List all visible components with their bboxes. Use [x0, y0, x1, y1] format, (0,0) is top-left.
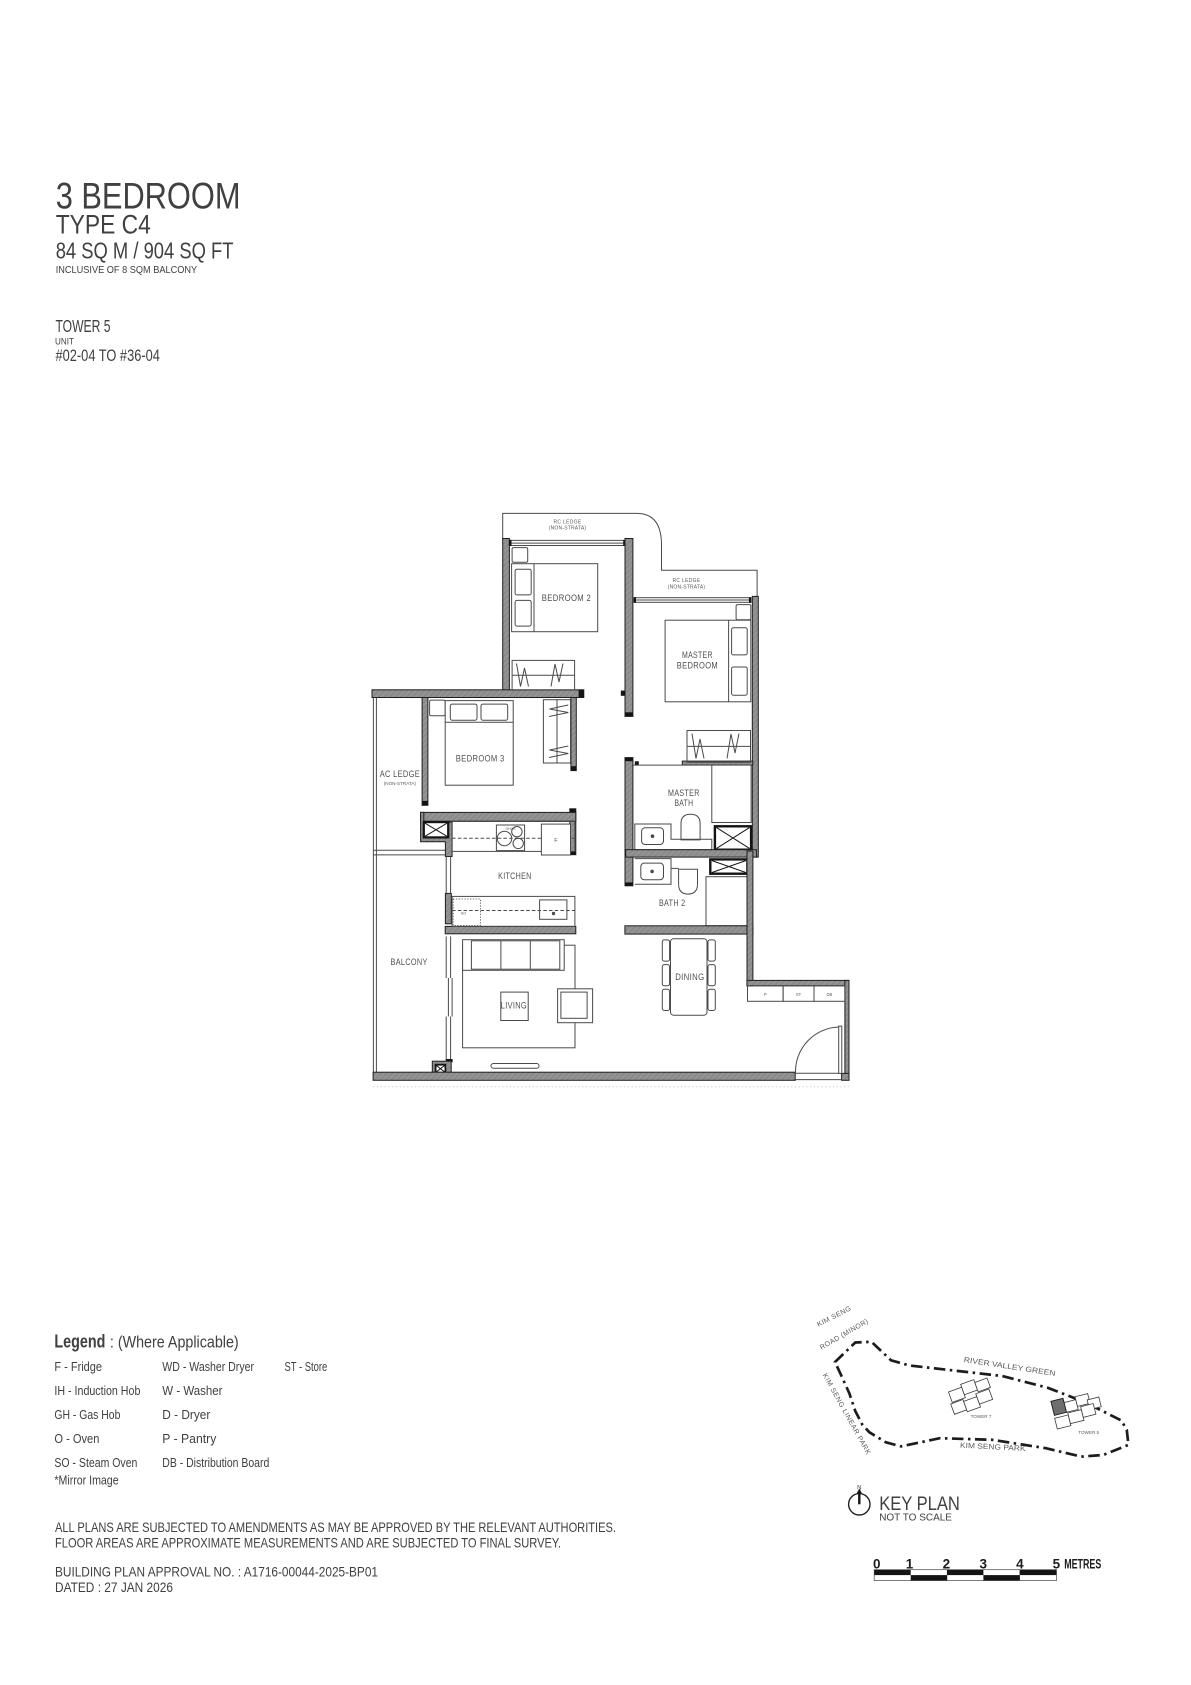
svg-text:LIVING: LIVING [501, 1001, 527, 1011]
svg-text:BALCONY: BALCONY [391, 957, 428, 967]
svg-text:ST: ST [796, 992, 802, 997]
svg-text:AC LEDGE: AC LEDGE [380, 769, 420, 779]
svg-text:P: P [764, 992, 767, 997]
svg-text:BATH 2: BATH 2 [659, 898, 686, 908]
svg-text:(NON-STRATA): (NON-STRATA) [668, 585, 706, 591]
svg-text:TOWER 7: TOWER 7 [971, 1414, 992, 1419]
svg-text:TOWER 5: TOWER 5 [56, 316, 111, 336]
svg-text:KITCHEN: KITCHEN [498, 871, 532, 881]
svg-text:BEDROOM 2: BEDROOM 2 [542, 593, 591, 603]
svg-text:(NON-STRATA): (NON-STRATA) [549, 526, 587, 532]
svg-text:NOT TO SCALE: NOT TO SCALE [879, 1512, 952, 1524]
svg-text:BEDROOM 3: BEDROOM 3 [456, 753, 505, 763]
svg-text:MASTER: MASTER [668, 788, 700, 798]
svg-text:DB - Distribution Board: DB - Distribution Board [162, 1456, 269, 1470]
svg-text:SO: SO [461, 912, 467, 916]
svg-text:SO - Steam Oven: SO - Steam Oven [54, 1456, 137, 1470]
svg-text:F - Fridge: F - Fridge [54, 1360, 102, 1374]
svg-text:F: F [554, 838, 558, 844]
svg-text:FLOOR AREAS ARE APPROXIMATE ME: FLOOR AREAS ARE APPROXIMATE MEASUREMENTS… [55, 1536, 561, 1551]
svg-text:BATH: BATH [674, 798, 693, 808]
svg-text:DINING: DINING [675, 972, 704, 982]
svg-text:GH - Gas Hob: GH - Gas Hob [54, 1408, 120, 1422]
svg-text:*Mirror Image: *Mirror Image [54, 1473, 118, 1487]
svg-text:MASTER: MASTER [682, 650, 713, 660]
svg-text:WD - Washer Dryer: WD - Washer Dryer [162, 1360, 254, 1374]
svg-text:UNIT: UNIT [55, 336, 74, 346]
svg-text:P - Pantry: P - Pantry [162, 1432, 217, 1446]
svg-text:D - Dryer: D - Dryer [162, 1408, 211, 1422]
svg-text:N: N [857, 1486, 861, 1492]
svg-text:GH/IH: GH/IH [506, 827, 516, 831]
svg-text:ST - Store: ST - Store [285, 1360, 328, 1374]
svg-text:TYPE C4: TYPE C4 [56, 210, 151, 240]
svg-text:(NON-STRATA): (NON-STRATA) [384, 781, 417, 786]
svg-text:BEDROOM: BEDROOM [677, 660, 718, 670]
svg-text:TOWER 5: TOWER 5 [1078, 1430, 1099, 1435]
svg-text:DATED : 27 JAN 2026: DATED : 27 JAN 2026 [55, 1580, 173, 1595]
svg-text:RC LEDGE: RC LEDGE [673, 578, 701, 584]
svg-text:: (Where Applicable): : (Where Applicable) [110, 1333, 239, 1352]
svg-text:O - Oven: O - Oven [54, 1432, 99, 1446]
svg-text:IH - Induction Hob: IH - Induction Hob [54, 1384, 140, 1398]
svg-text:METRES: METRES [1064, 1557, 1101, 1572]
svg-text:DB: DB [826, 992, 832, 997]
svg-text:#02-04 TO #36-04: #02-04 TO #36-04 [56, 346, 160, 365]
svg-text:84 SQ M / 904 SQ FT: 84 SQ M / 904 SQ FT [56, 238, 234, 264]
svg-text:INCLUSIVE OF 8 SQM BALCONY: INCLUSIVE OF 8 SQM BALCONY [56, 264, 198, 276]
svg-text:Legend: Legend [54, 1331, 105, 1352]
svg-text:ALL PLANS ARE SUBJECTED TO AME: ALL PLANS ARE SUBJECTED TO AMENDMENTS AS… [55, 1520, 616, 1535]
svg-text:W - Washer: W - Washer [162, 1384, 223, 1398]
svg-text:BUILDING PLAN APPROVAL NO. : A: BUILDING PLAN APPROVAL NO. : A1716-00044… [55, 1565, 378, 1580]
